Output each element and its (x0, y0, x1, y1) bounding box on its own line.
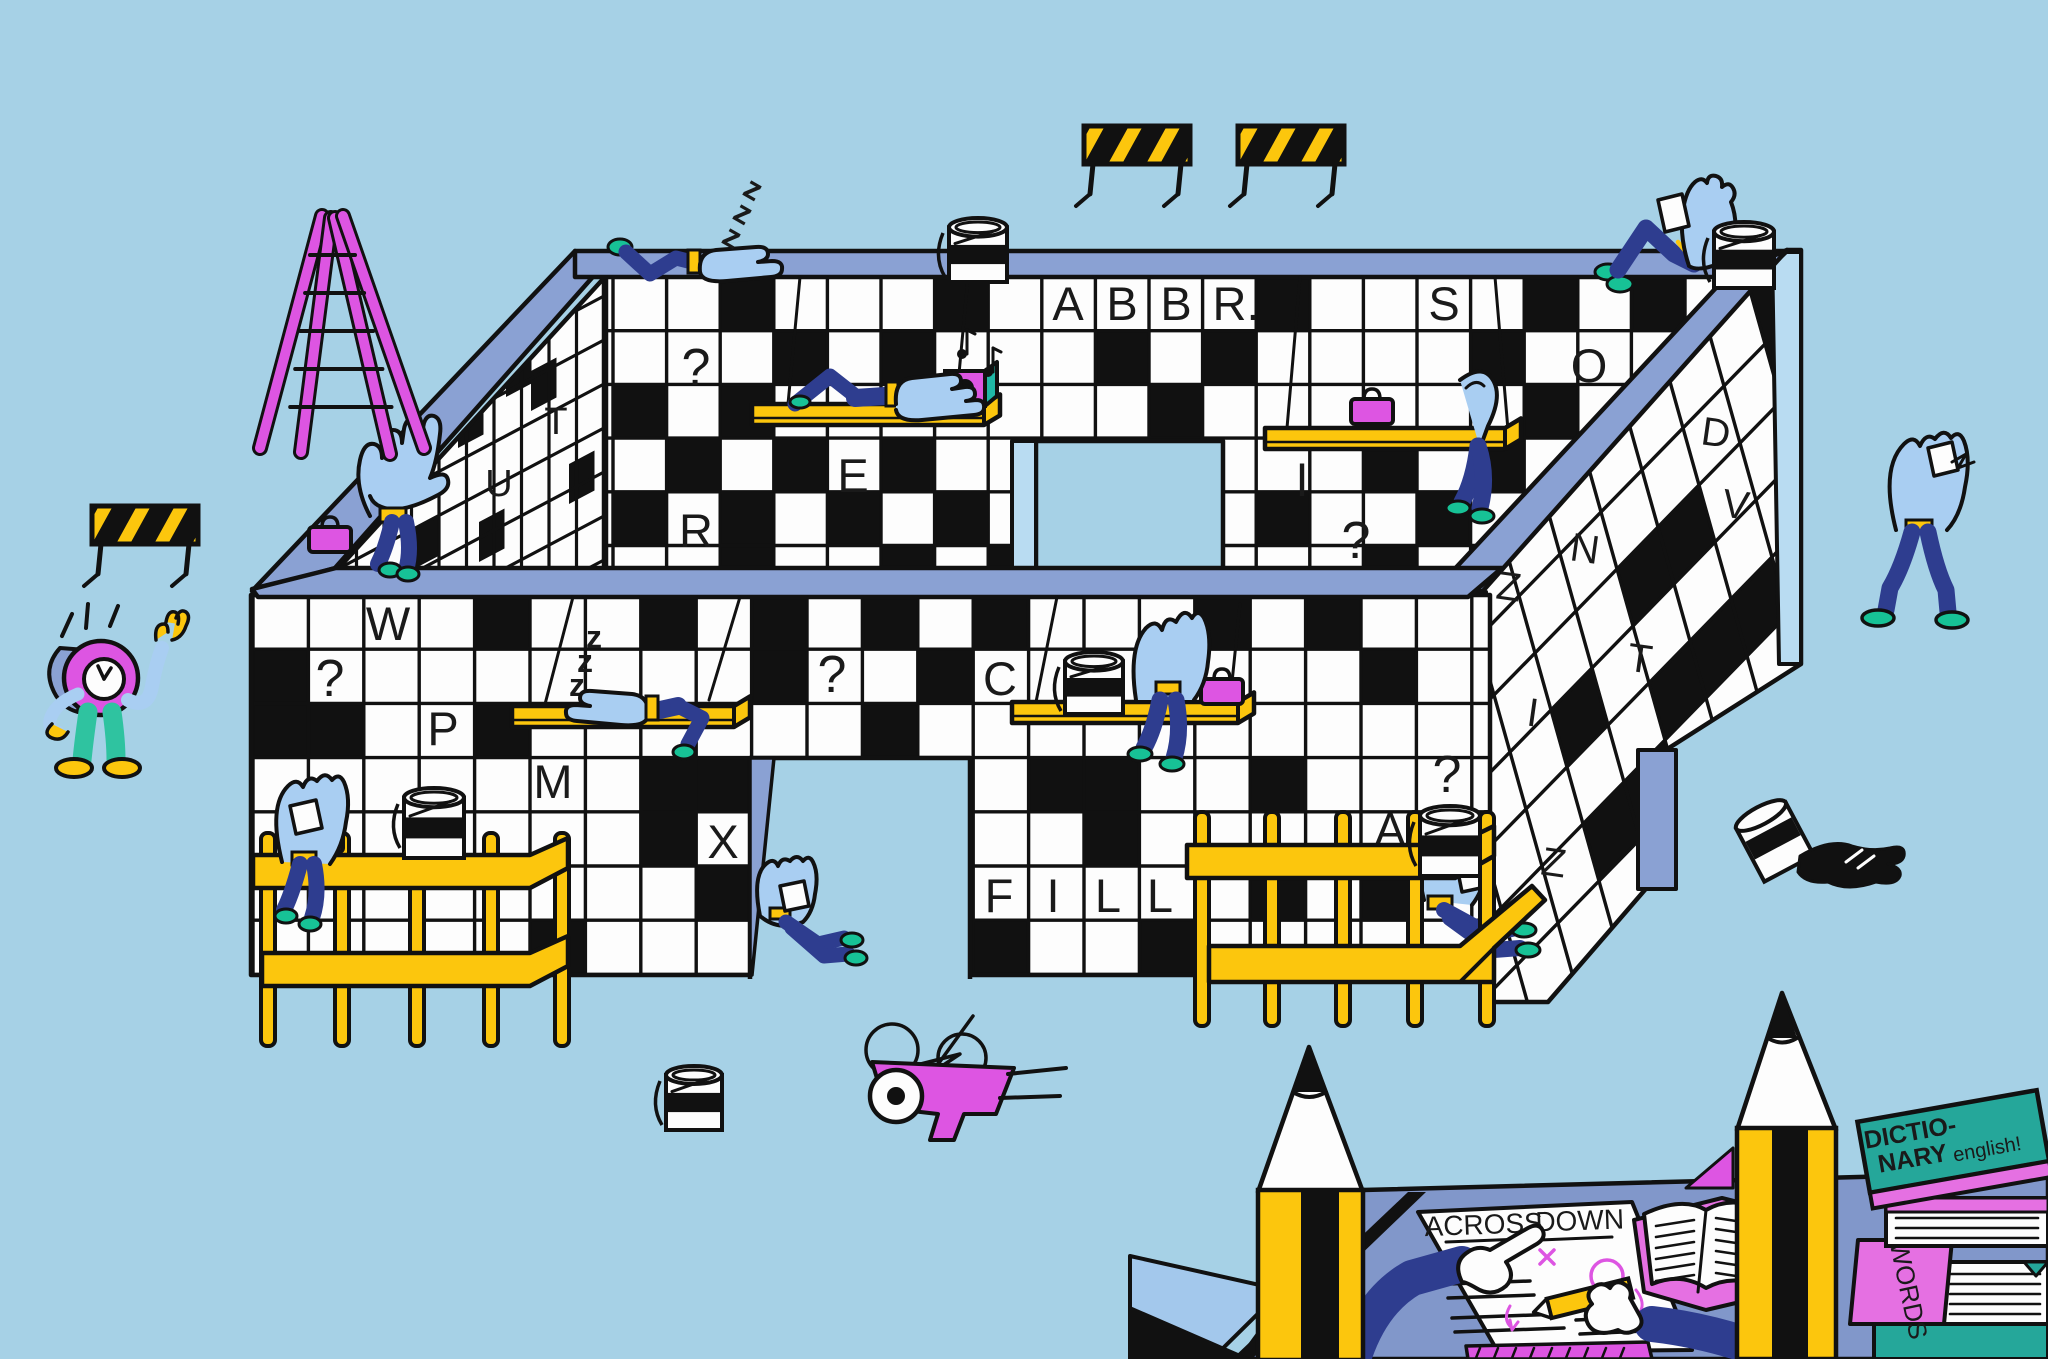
svg-text:N: N (1567, 525, 1602, 573)
svg-text:W: W (366, 597, 411, 650)
svg-text:E: E (837, 449, 868, 502)
svg-text:A: A (1052, 277, 1084, 330)
svg-text:L: L (1147, 869, 1173, 922)
svg-text:D: D (1698, 409, 1733, 457)
svg-text:O: O (1571, 339, 1608, 392)
svg-text:?: ? (1433, 746, 1462, 804)
svg-text:X: X (707, 815, 738, 868)
svg-text:S: S (1428, 277, 1459, 330)
svg-text:R: R (679, 504, 713, 557)
svg-text:C: C (983, 652, 1017, 705)
svg-text:M: M (533, 755, 572, 808)
svg-text:?: ? (316, 650, 345, 708)
svg-text:P: P (427, 702, 458, 755)
svg-text:R.: R. (1213, 277, 1260, 330)
svg-text:I: I (1295, 453, 1308, 506)
svg-text:B: B (1106, 277, 1137, 330)
svg-text:B: B (1160, 277, 1191, 330)
svg-text:DOWN: DOWN (1535, 1203, 1625, 1237)
svg-text:I: I (1046, 869, 1059, 922)
svg-text:U: U (485, 463, 512, 505)
svg-text:T: T (544, 401, 567, 443)
svg-text:?: ? (1342, 512, 1371, 570)
svg-text:L: L (1095, 869, 1121, 922)
svg-text:F: F (985, 869, 1014, 922)
svg-text:?: ? (682, 339, 711, 397)
svg-text:?: ? (818, 646, 847, 704)
